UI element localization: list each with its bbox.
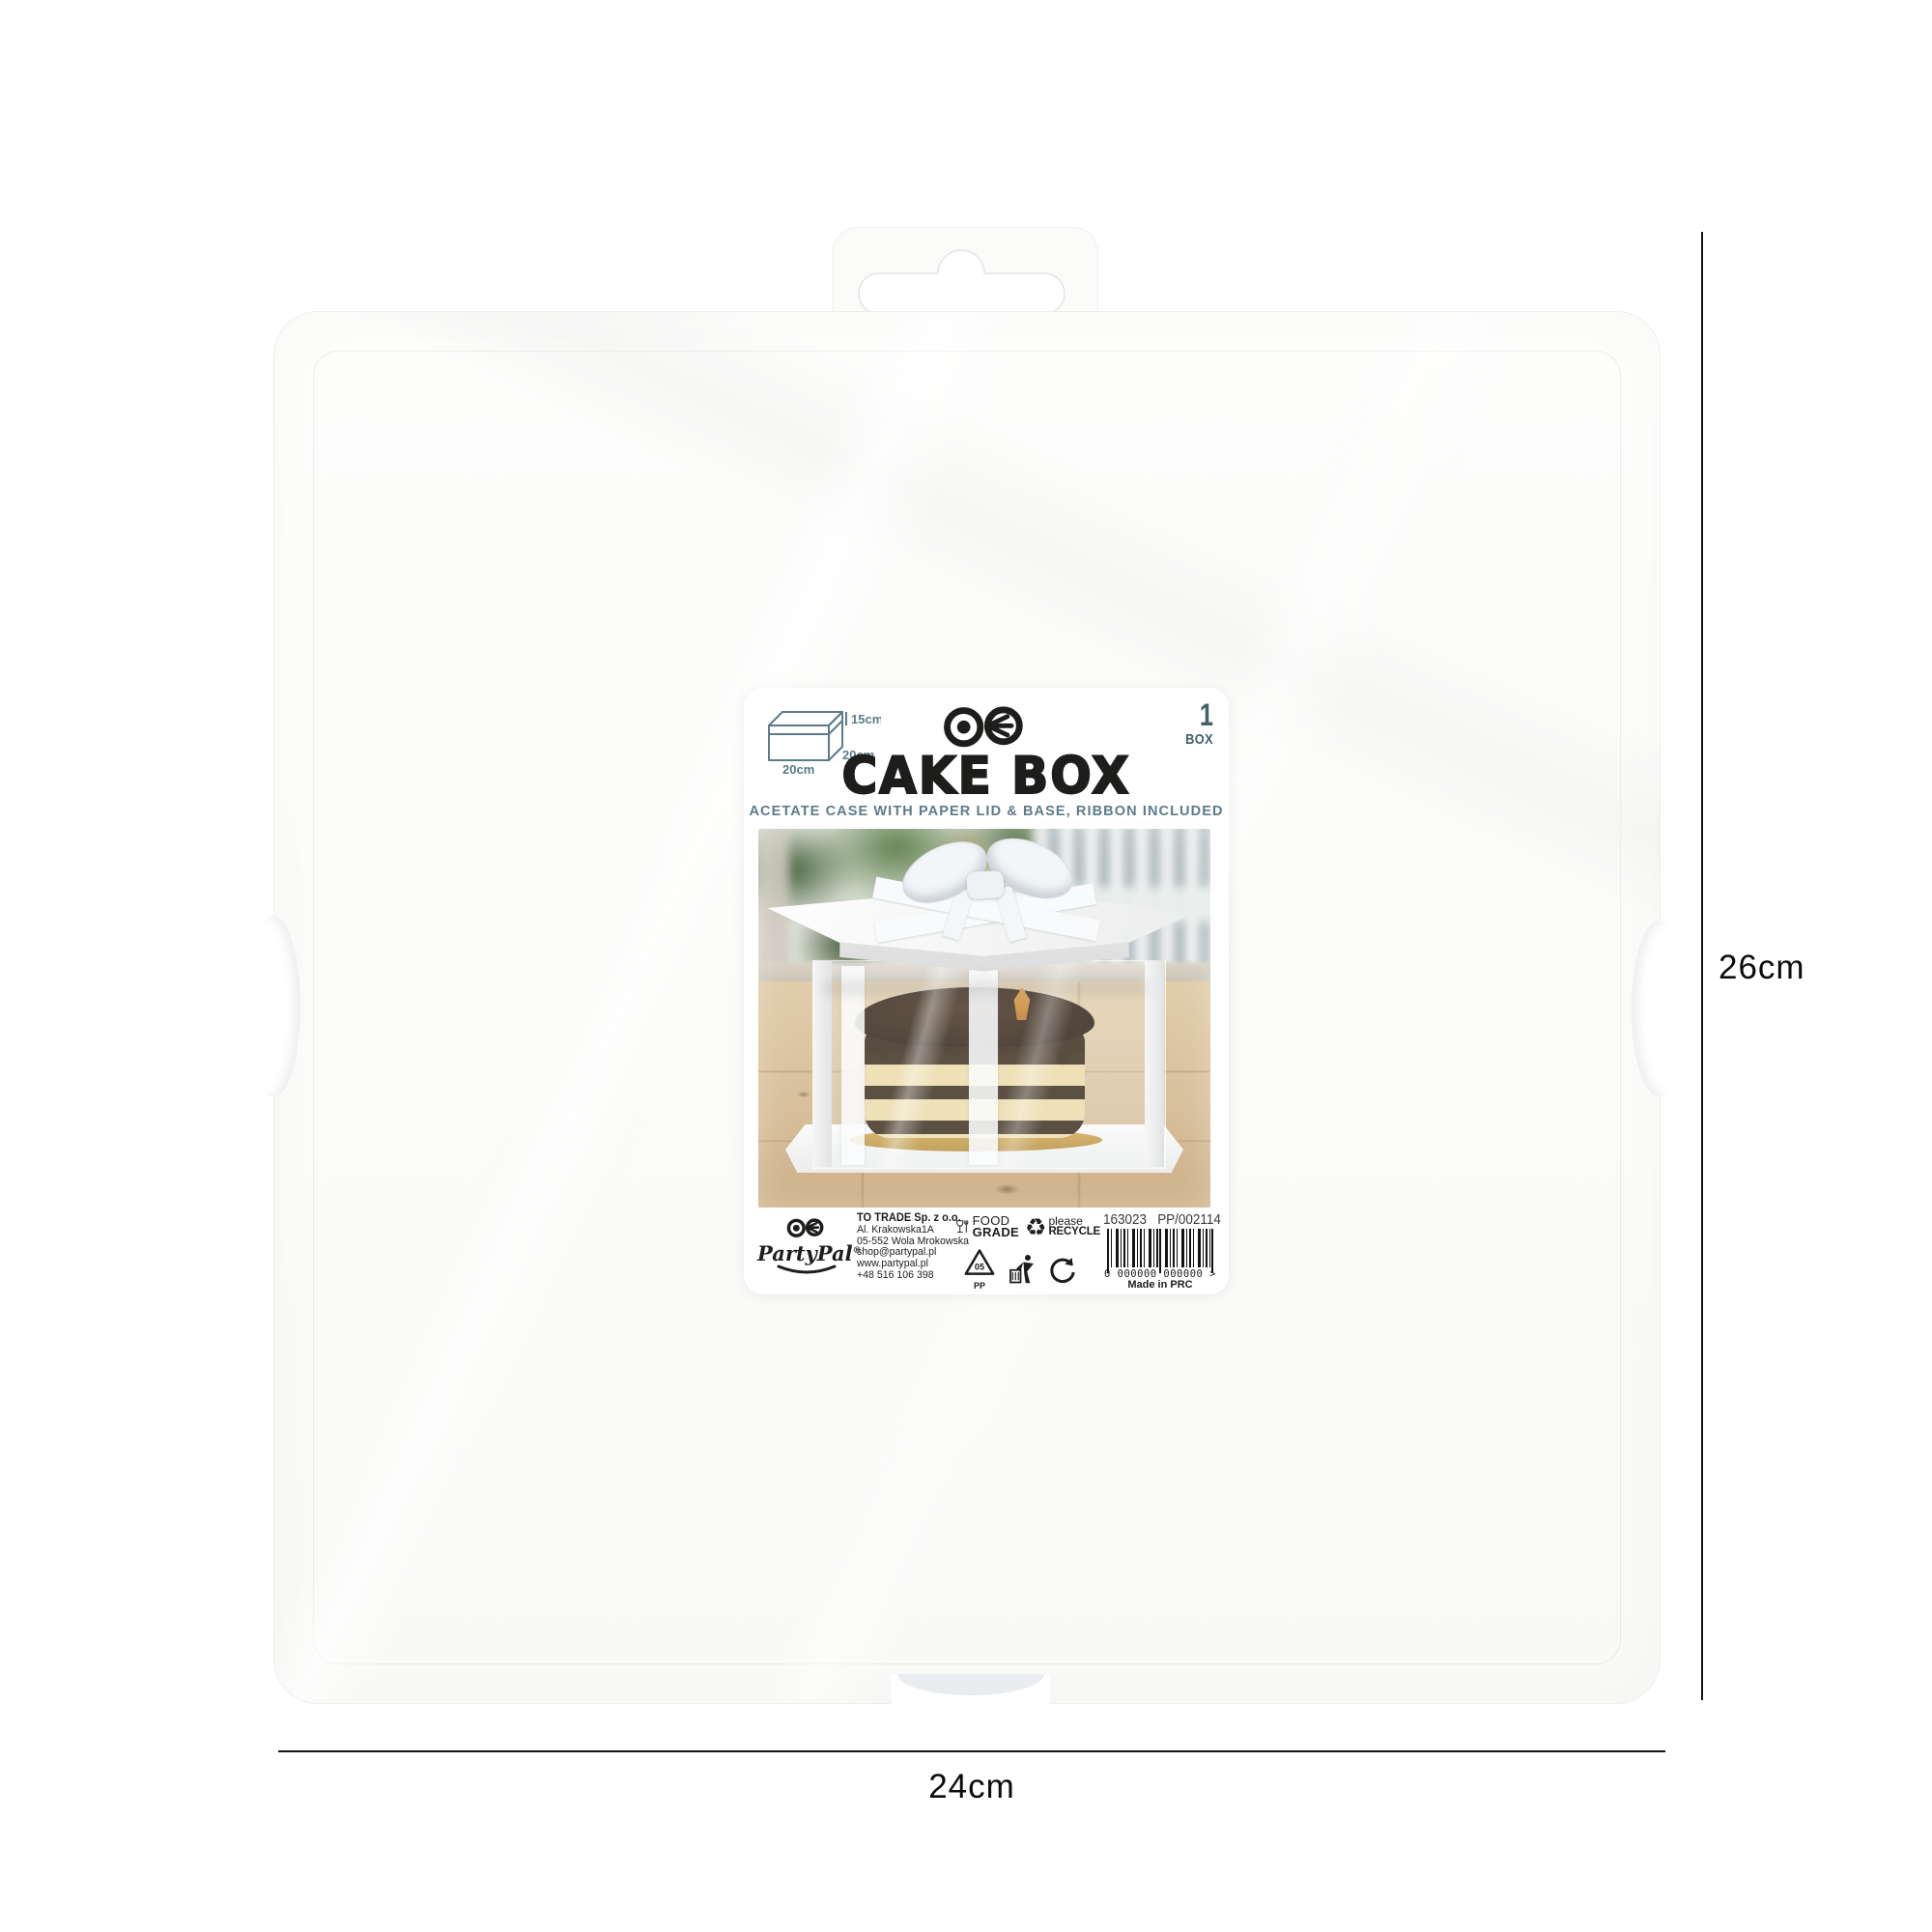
cert-row-2: 05 PP (955, 1248, 1100, 1290)
barcode-guard (1107, 1229, 1109, 1273)
recycle-loop-icon: ♻ (1025, 1215, 1046, 1239)
circular-arrow-icon (1048, 1255, 1077, 1284)
pp-number: 05 (975, 1263, 984, 1272)
width-dimension-label: 24cm (875, 1768, 1068, 1806)
food-grade-text: FOOD GRADE (973, 1215, 1019, 1238)
brand-logo: PartyPal® (757, 1217, 856, 1281)
height-dimension-label: 26cm (1719, 949, 1805, 987)
brand-smile-icon (775, 1264, 838, 1276)
made-in-label: Made in PRC (1107, 1279, 1213, 1291)
product-name: CAKE BOX (744, 747, 1229, 806)
address-line: +48 516 106 398 (857, 1270, 966, 1282)
pack-count: 1 (1187, 699, 1213, 730)
package-bottom-notch (892, 1674, 1050, 1707)
euro-slot-icon (834, 228, 1097, 325)
package-left-notch (246, 916, 300, 1097)
page: { "dimensions": { "height_label": "26cm"… (0, 0, 1932, 1932)
item-codes: 163023 PP/002114 (1103, 1212, 1216, 1228)
width-dimension-line (278, 1750, 1665, 1752)
food-grade-icon (955, 1212, 970, 1241)
barcode (1107, 1229, 1213, 1267)
brand-name: PartyPal® (757, 1243, 856, 1264)
diagram-height-label: 15cm (851, 712, 881, 726)
product-subtitle: ACETATE CASE WITH PAPER LID & BASE, RIBB… (744, 804, 1229, 819)
product-label: 15cm 20cm 20cm 1 BOX CAKE BOX ACETATE CA… (744, 688, 1229, 1294)
brand-eyes-icon (940, 703, 1033, 750)
brand-eyes-small-icon (785, 1217, 828, 1238)
barcode-guard (1211, 1229, 1213, 1273)
pack-quantity: 1 BOX (1180, 699, 1213, 747)
barcode-guard (1159, 1229, 1161, 1273)
height-dimension-line (1701, 232, 1703, 1700)
tidy-man-icon (1008, 1254, 1037, 1285)
certification-icons: FOOD GRADE ♻ please RECYCLE 05 PP (955, 1212, 1100, 1290)
food-grade-line2: GRADE (973, 1227, 1019, 1238)
item-code: 163023 (1103, 1212, 1147, 1228)
pp-label: PP (963, 1282, 996, 1290)
package-bottom-notch-arch (897, 1674, 1044, 1695)
brand-name-text: PartyPal (757, 1241, 853, 1265)
package-right-notch (1632, 921, 1686, 1096)
product-photo (758, 829, 1210, 1207)
company-address: TO TRADE Sp. z o.o. Al. Krakowska1A 05-5… (857, 1213, 966, 1282)
item-ref: PP/002114 (1157, 1212, 1221, 1228)
pp-05-triangle-icon: 05 (963, 1248, 996, 1277)
photo-vignette (758, 829, 1210, 1207)
address-line: Al. Krakowska1A (857, 1225, 966, 1236)
pp-recycling-block: 05 PP (963, 1248, 996, 1290)
please-recycle-text: please RECYCLE (1048, 1216, 1100, 1237)
recycle-line2: RECYCLE (1048, 1227, 1100, 1237)
cert-row-1: FOOD GRADE ♻ please RECYCLE (955, 1212, 1100, 1241)
pack-unit: BOX (1185, 732, 1213, 747)
